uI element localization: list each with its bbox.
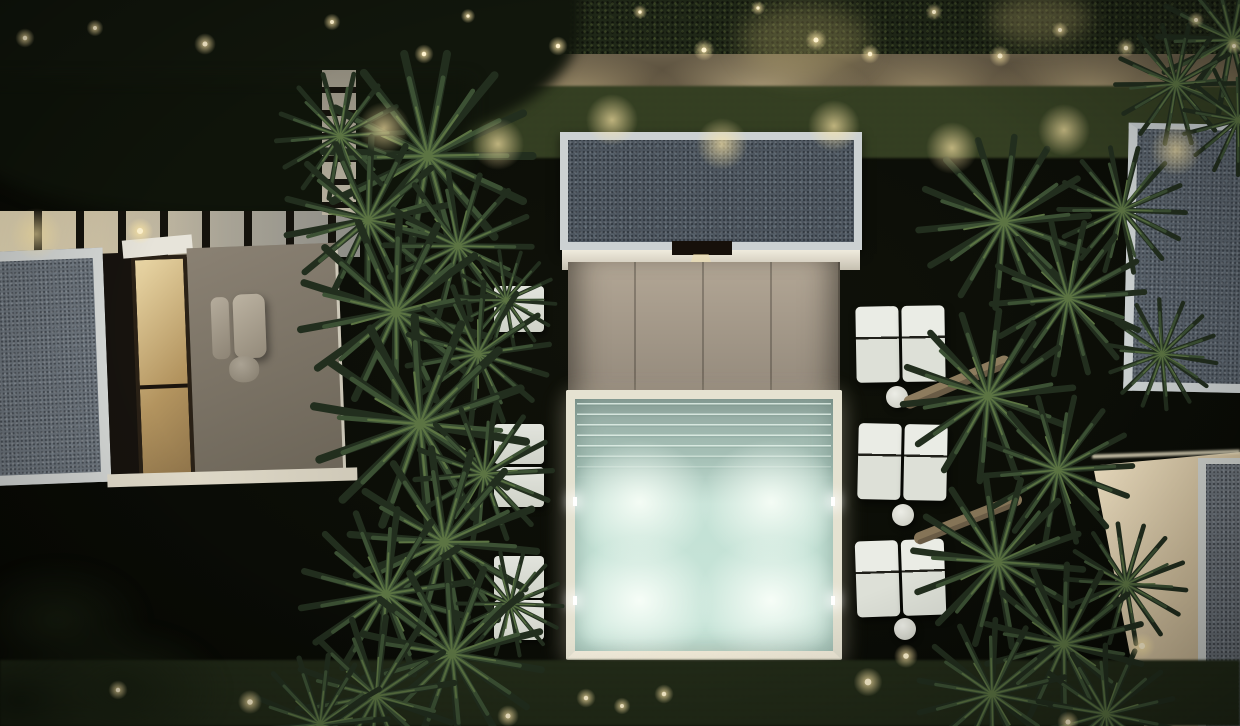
pool-wall-light — [831, 596, 835, 605]
fascia-light-slot — [672, 241, 732, 255]
aerial-villa-render — [0, 0, 1240, 726]
pool-glow-orbs — [575, 399, 833, 651]
canopy-lit-patch — [740, 4, 870, 76]
left-lounger-cushion — [494, 467, 544, 507]
lounger-pair — [857, 423, 949, 501]
armchair-cushion-right — [232, 293, 266, 358]
sun-lounger — [855, 306, 899, 383]
sun-lounger — [857, 423, 902, 500]
left-lounger-cushion — [494, 556, 544, 598]
armchair-ottoman — [229, 356, 260, 383]
armchair — [210, 293, 269, 373]
roof-top-right — [1123, 123, 1240, 394]
left-lounger-cushion — [494, 286, 544, 332]
pool-terrace — [568, 262, 840, 396]
pool-wall-light — [831, 497, 835, 506]
sun-lounger — [903, 424, 948, 501]
left-lounger-cushion — [494, 424, 544, 464]
lounger-pair — [855, 305, 946, 383]
corner-shrubs-bottom-left — [0, 540, 240, 726]
pool-water — [575, 399, 833, 651]
poolhouse-roof — [560, 132, 862, 250]
tree-canopy-lower — [0, 80, 470, 220]
pool-wall-light — [573, 596, 577, 605]
building-top-left — [0, 224, 372, 502]
side-table — [894, 618, 916, 640]
lightwell-room — [131, 254, 196, 480]
armchair-cushion-left — [210, 297, 230, 360]
sun-lounger — [901, 305, 945, 382]
sun-lounger — [855, 540, 901, 617]
pool — [566, 390, 842, 660]
sun-lounger — [901, 538, 947, 615]
gravel-roof-top-left — [0, 248, 111, 486]
side-table — [886, 386, 908, 408]
left-lounger-cushion — [494, 600, 544, 640]
pool-wall-light — [573, 497, 577, 506]
lounger-pair — [855, 538, 948, 617]
room-divider — [140, 384, 188, 390]
wood-deck — [187, 243, 347, 479]
paver-path-vertical — [322, 70, 356, 215]
side-table — [892, 504, 914, 526]
